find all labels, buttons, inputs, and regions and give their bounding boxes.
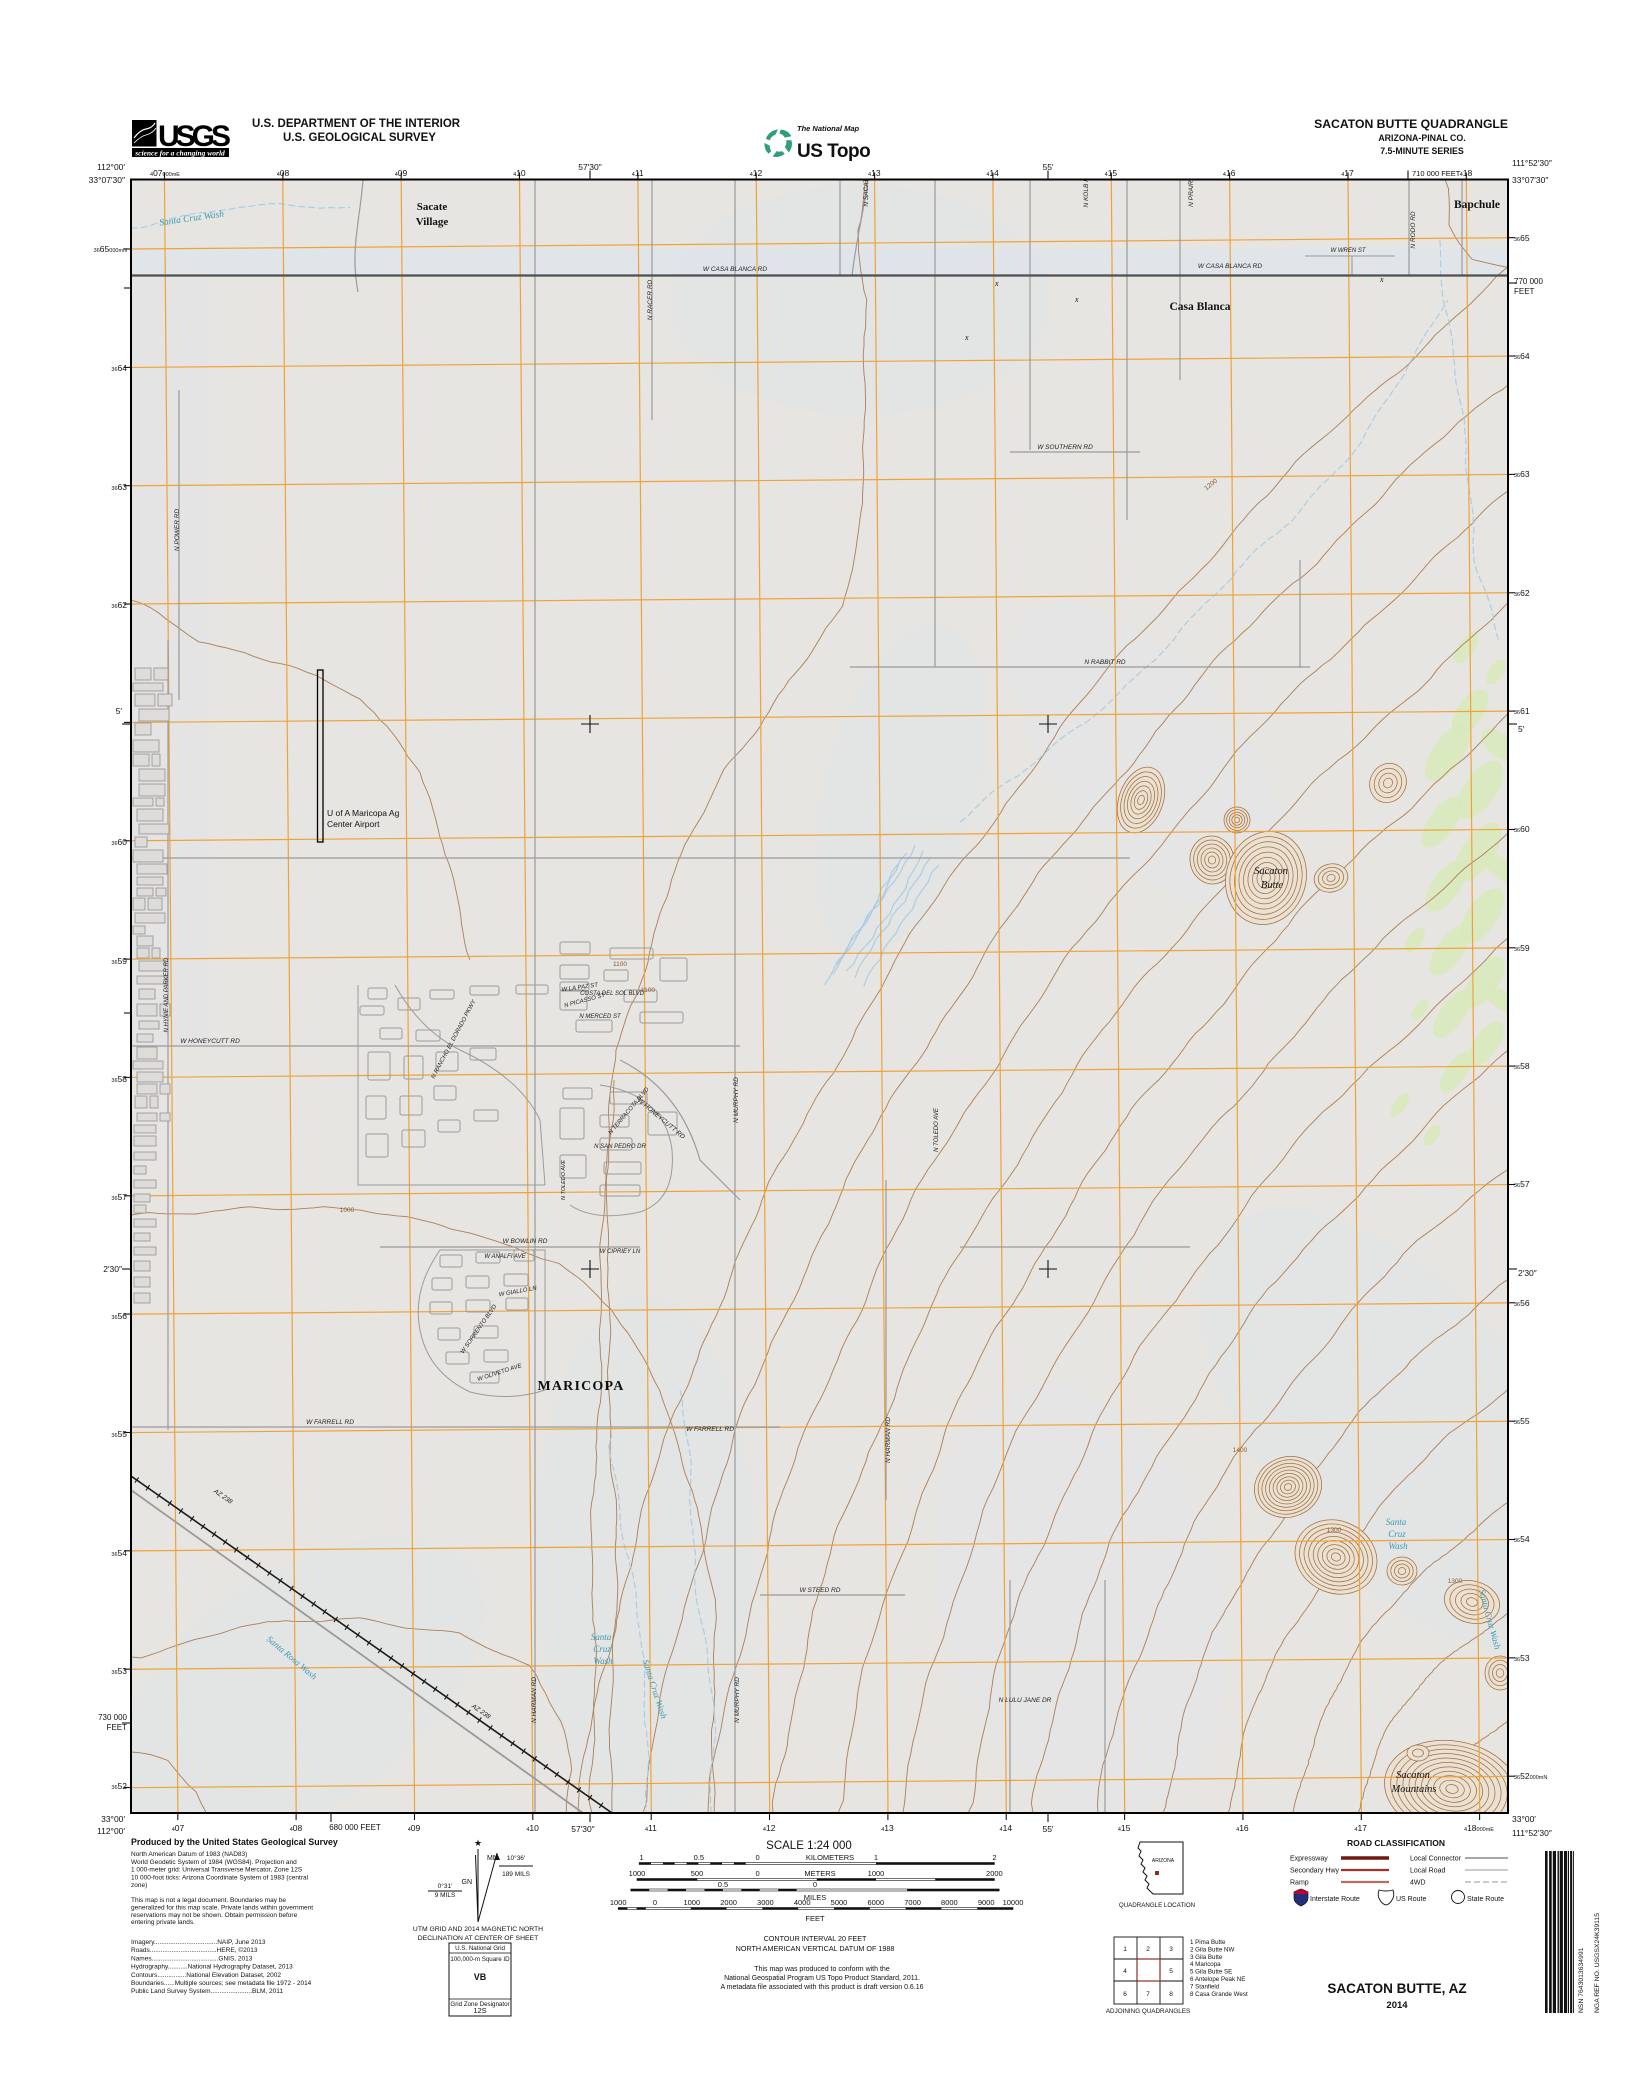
svg-text:0.5: 0.5 (718, 1880, 728, 1889)
svg-text:5 Gila Butte SE: 5 Gila Butte SE (1190, 1969, 1232, 1976)
svg-text:DECLINATION AT CENTER OF SHEET: DECLINATION AT CENTER OF SHEET (418, 1935, 538, 1942)
svg-text:KILOMETERS: KILOMETERS (806, 1853, 854, 1862)
svg-text:4 Maricopa: 4 Maricopa (1190, 1961, 1221, 1968)
svg-text:Bapchule: Bapchule (1454, 199, 1500, 211)
svg-text:W CASA BLANCA RD: W CASA BLANCA RD (1198, 263, 1262, 270)
svg-text:7000: 7000 (904, 1898, 921, 1907)
svg-text:Hydrography...........National: Hydrography...........National Hydrograp… (131, 1964, 293, 1971)
svg-text:North American Datum of 1983 (: North American Datum of 1983 (NAD83) (131, 1851, 247, 1858)
svg-text:N RABBIT RD: N RABBIT RD (1084, 659, 1125, 666)
svg-text:x: x (994, 279, 999, 288)
svg-text:This map is not a legal docume: This map is not a legal document. Bounda… (131, 1897, 286, 1904)
svg-text:33°00′: 33°00′ (1512, 1814, 1536, 1824)
svg-text:NORTH AMERICAN VERTICAL DATUM: NORTH AMERICAN VERTICAL DATUM OF 1988 (736, 1944, 895, 1953)
svg-text:Ramp: Ramp (1290, 1880, 1309, 1887)
svg-text:entering private lands.: entering private lands. (131, 1919, 195, 1926)
svg-text:N HYNIE AND PARKER RD: N HYNIE AND PARKER RD (164, 957, 170, 1032)
svg-text:NSN 7643013634991: NSN 7643013634991 (1578, 1947, 1585, 2013)
svg-text:111°52′30″: 111°52′30″ (1512, 158, 1552, 168)
svg-text:112°00′: 112°00′ (97, 162, 125, 172)
svg-text:Santa: Santa (591, 1632, 612, 1642)
svg-text:1000: 1000 (340, 1207, 355, 1214)
svg-text:33°07′30″: 33°07′30″ (1512, 175, 1548, 185)
svg-text:N HARMAN RD: N HARMAN RD (531, 1677, 538, 1723)
svg-text:Village: Village (416, 216, 449, 228)
svg-text:MARICOPA: MARICOPA (537, 1379, 624, 1394)
svg-text:2: 2 (992, 1853, 996, 1862)
svg-text:0: 0 (756, 1869, 760, 1878)
svg-text:UTM GRID AND 2014 MAGNETIC NOR: UTM GRID AND 2014 MAGNETIC NORTH (413, 1926, 543, 1933)
svg-text:Local Connector: Local Connector (1410, 1856, 1462, 1863)
svg-text:500: 500 (691, 1869, 704, 1878)
svg-text:ARIZONA-PINAL CO.: ARIZONA-PINAL CO. (1378, 133, 1465, 143)
svg-text:0: 0 (813, 1880, 817, 1889)
svg-text:7.5-MINUTE SERIES: 7.5-MINUTE SERIES (1380, 146, 1464, 156)
svg-text:National Geospatial Program US: National Geospatial Program US Topo Prod… (724, 1975, 920, 1982)
svg-text:Center Airport: Center Airport (327, 819, 380, 829)
svg-text:6: 6 (1123, 1991, 1127, 1998)
svg-text:5′: 5′ (1518, 724, 1525, 734)
svg-text:US Topo: US Topo (797, 141, 870, 162)
svg-text:730 000: 730 000 (98, 1713, 127, 1722)
svg-text:VB: VB (474, 1972, 487, 1982)
svg-text:U of A Maricopa Ag: U of A Maricopa Ag (327, 808, 400, 818)
svg-text:Secondary Hwy: Secondary Hwy (1290, 1868, 1340, 1875)
svg-text:Roads.........................: Roads...................................… (131, 1946, 258, 1954)
svg-text:science for a changing world: science for a changing world (134, 149, 225, 158)
svg-text:reservations may not be shown.: reservations may not be shown. Obtain pe… (131, 1912, 298, 1919)
svg-text:Santa: Santa (1386, 1517, 1407, 1527)
svg-text:10 000-foot ticks: Arizona Coo: 10 000-foot ticks: Arizona Coordinate Sy… (131, 1874, 309, 1881)
svg-text:The National Map: The National Map (797, 124, 860, 133)
svg-text:SACATON BUTTE, AZ: SACATON BUTTE, AZ (1327, 1981, 1466, 1996)
svg-text:1100: 1100 (613, 961, 627, 968)
svg-text:x: x (1074, 295, 1079, 304)
svg-text:Expressway: Expressway (1290, 1856, 1328, 1863)
svg-text:6000: 6000 (867, 1898, 884, 1907)
svg-text:Names.........................: Names...................................… (131, 1955, 253, 1962)
svg-text:GN: GN (462, 1879, 473, 1886)
svg-text:1 000-meter grid: Universal Tr: 1 000-meter grid: Universal Transverse M… (131, 1867, 303, 1874)
svg-text:★: ★ (474, 1838, 482, 1848)
svg-text:1000: 1000 (683, 1898, 700, 1907)
svg-text:3000: 3000 (757, 1898, 774, 1907)
svg-text:1300: 1300 (1448, 1578, 1463, 1585)
svg-text:4WD: 4WD (1410, 1880, 1426, 1887)
svg-text:0: 0 (756, 1853, 760, 1862)
svg-text:7 Stanfield: 7 Stanfield (1190, 1983, 1220, 1990)
svg-text:SACATON BUTTE QUADRANGLE: SACATON BUTTE QUADRANGLE (1314, 117, 1508, 131)
svg-text:U.S. DEPARTMENT OF THE INTERIO: U.S. DEPARTMENT OF THE INTERIOR (252, 118, 461, 130)
svg-text:MN: MN (487, 1855, 498, 1862)
svg-text:1100: 1100 (641, 987, 655, 994)
svg-text:CONTOUR INTERVAL 20 FEET: CONTOUR INTERVAL 20 FEET (764, 1934, 867, 1943)
svg-text:W CASA BLANCA RD: W CASA BLANCA RD (703, 266, 767, 273)
svg-text:8000: 8000 (941, 1898, 958, 1907)
svg-text:Interstate Route: Interstate Route (1310, 1896, 1360, 1903)
svg-text:U.S. GEOLOGICAL SURVEY: U.S. GEOLOGICAL SURVEY (283, 132, 436, 144)
svg-text:W BOWLIN RD: W BOWLIN RD (503, 1238, 548, 1245)
svg-text:W FARRELL RD: W FARRELL RD (306, 1419, 354, 1426)
svg-text:770 000: 770 000 (1514, 277, 1543, 286)
svg-text:N MERCED ST: N MERCED ST (579, 1014, 622, 1020)
svg-text:2′30″: 2′30″ (103, 1264, 122, 1274)
svg-text:3: 3 (1169, 1946, 1173, 1953)
svg-text:x: x (964, 333, 969, 342)
svg-text:1400: 1400 (1233, 1447, 1248, 1454)
svg-text:Contours................Nation: Contours................National Elevati… (131, 1972, 281, 1979)
svg-text:10000: 10000 (1003, 1898, 1024, 1907)
svg-text:8 Casa Grande West: 8 Casa Grande West (1190, 1991, 1248, 1998)
svg-text:N HARMAN RD: N HARMAN RD (885, 1417, 892, 1463)
svg-text:2000: 2000 (986, 1869, 1003, 1878)
svg-text:1000: 1000 (868, 1869, 885, 1878)
svg-text:Casa Blanca: Casa Blanca (1169, 301, 1230, 313)
svg-text:112°00′: 112°00′ (97, 1826, 125, 1836)
svg-text:Wash: Wash (593, 1656, 613, 1666)
svg-text:W FARRELL RD: W FARRELL RD (686, 1426, 734, 1433)
svg-text:33°07′30″: 33°07′30″ (89, 175, 125, 185)
svg-text:State Route: State Route (1467, 1896, 1504, 1903)
svg-text:W STEED RD: W STEED RD (800, 1587, 841, 1594)
svg-text:2 Gila Butte NW: 2 Gila Butte NW (1190, 1946, 1235, 1953)
svg-text:Produced by the United States: Produced by the United States Geological… (131, 1837, 338, 1847)
svg-text:3 Gila Butte: 3 Gila Butte (1190, 1954, 1223, 1961)
svg-text:2′30″: 2′30″ (1518, 1268, 1537, 1278)
svg-text:NGA REF NO. USGSX24K39115: NGA REF NO. USGSX24K39115 (1594, 1913, 1601, 2013)
svg-text:55′: 55′ (1042, 1824, 1053, 1834)
svg-text:Public Land Survey System..: Public Land Survey System...............… (131, 1988, 283, 1995)
svg-text:World Geodetic System of 1984: World Geodetic System of 1984 (WGS84). P… (131, 1859, 297, 1866)
svg-text:N SAN PEDRO DR: N SAN PEDRO DR (594, 1144, 646, 1150)
svg-text:5: 5 (1169, 1968, 1173, 1975)
svg-text:9 MILS: 9 MILS (435, 1892, 456, 1899)
svg-text:189 MILS: 189 MILS (502, 1871, 530, 1878)
svg-text:N TOLEDO AVE: N TOLEDO AVE (934, 1107, 940, 1152)
svg-text:N RACER RD: N RACER RD (647, 279, 654, 320)
svg-text:1 Pima Butte: 1 Pima Butte (1190, 1939, 1226, 1946)
svg-text:2000: 2000 (720, 1898, 737, 1907)
svg-text:zone): zone) (131, 1882, 147, 1889)
svg-text:100,000-m Square ID: 100,000-m Square ID (450, 1956, 510, 1963)
svg-text:This map was produced to confo: This map was produced to conform with th… (754, 1966, 890, 1973)
svg-text:6 Antelope Peak NE: 6 Antelope Peak NE (1190, 1976, 1245, 1983)
svg-text:57′30″: 57′30″ (571, 1824, 595, 1834)
svg-text:QUADRANGLE LOCATION: QUADRANGLE LOCATION (1119, 1902, 1195, 1909)
svg-text:x: x (1379, 275, 1384, 284)
svg-text:1000: 1000 (610, 1898, 627, 1907)
svg-text:2: 2 (1146, 1946, 1150, 1953)
svg-text:1: 1 (874, 1853, 878, 1862)
svg-text:Sacaton: Sacaton (1254, 866, 1288, 877)
svg-text:N RODO RD: N RODO RD (1410, 211, 1417, 249)
svg-text:5000: 5000 (831, 1898, 848, 1907)
svg-text:W HONEYCUTT RD: W HONEYCUTT RD (180, 1038, 240, 1045)
svg-text:Cruz: Cruz (593, 1644, 611, 1654)
svg-text:710 000 FEET: 710 000 FEET (1412, 169, 1461, 178)
svg-text:33°00′: 33°00′ (101, 1814, 125, 1824)
svg-text:generalized for this map scale: generalized for this map scale. Private … (131, 1904, 313, 1911)
svg-text:ADJOINING QUADRANGLES: ADJOINING QUADRANGLES (1106, 2008, 1190, 2015)
svg-text:1: 1 (640, 1853, 644, 1862)
svg-text:Sacaton: Sacaton (1396, 1770, 1430, 1781)
svg-text:FEET: FEET (1514, 287, 1535, 296)
svg-text:Imagery.......................: Imagery.................................… (131, 1939, 266, 1946)
svg-text:Butte: Butte (1261, 880, 1283, 891)
svg-text:0.5: 0.5 (694, 1853, 704, 1862)
svg-text:W WREN ST: W WREN ST (1331, 248, 1367, 254)
svg-text:W CIPRIEY LN: W CIPRIEY LN (600, 1249, 641, 1255)
svg-text:9000: 9000 (978, 1898, 995, 1907)
svg-text:Sacate: Sacate (417, 201, 448, 213)
svg-text:N MURPHY RD: N MURPHY RD (733, 1077, 740, 1123)
svg-text:0: 0 (653, 1898, 657, 1907)
svg-text:2014: 2014 (1386, 2000, 1408, 2011)
svg-text:FEET: FEET (805, 1914, 825, 1923)
svg-text:12S: 12S (473, 2006, 486, 2015)
svg-text:1300: 1300 (1327, 1527, 1342, 1534)
svg-text:N MURPHY RD: N MURPHY RD (734, 1677, 741, 1723)
svg-text:Local Road: Local Road (1410, 1868, 1446, 1875)
svg-text:0°31′: 0°31′ (438, 1882, 453, 1890)
svg-text:680 000 FEET: 680 000 FEET (329, 1823, 381, 1832)
svg-text:U.S. National Grid: U.S. National Grid (455, 1945, 505, 1952)
svg-text:N POWER RD: N POWER RD (174, 509, 181, 552)
svg-text:W ANALFI AVE: W ANALFI AVE (484, 1254, 526, 1260)
svg-text:5′: 5′ (116, 706, 123, 716)
svg-text:55′: 55′ (1042, 162, 1053, 172)
svg-text:ARIZONA: ARIZONA (1152, 1858, 1175, 1864)
svg-text:Mountains: Mountains (1391, 1784, 1437, 1795)
svg-text:N LULU JANE DR: N LULU JANE DR (999, 1697, 1052, 1704)
svg-text:METERS: METERS (804, 1869, 835, 1878)
svg-text:ROAD CLASSIFICATION: ROAD CLASSIFICATION (1347, 1838, 1445, 1848)
svg-text:8: 8 (1169, 1991, 1173, 1998)
svg-text:1: 1 (1123, 1946, 1127, 1953)
svg-text:N TOLEDO AVE: N TOLEDO AVE (561, 1160, 567, 1200)
svg-text:111°52′30″: 111°52′30″ (1512, 1828, 1552, 1838)
svg-text:Cruz: Cruz (1388, 1529, 1406, 1539)
svg-text:4000: 4000 (794, 1898, 811, 1907)
svg-text:4: 4 (1123, 1968, 1127, 1975)
svg-text:7: 7 (1146, 1991, 1150, 1998)
svg-text:Wash: Wash (1388, 1541, 1408, 1551)
svg-text:FEET: FEET (107, 1723, 128, 1732)
svg-text:1000: 1000 (629, 1869, 646, 1878)
svg-text:US Route: US Route (1396, 1896, 1426, 1903)
svg-text:SCALE 1:24 000: SCALE 1:24 000 (766, 1840, 852, 1852)
svg-text:Boundaries......Multiple sourc: Boundaries......Multiple sources; see me… (131, 1980, 312, 1987)
svg-text:A metadata file associated wit: A metadata file associated with this pro… (720, 1984, 923, 1991)
svg-text:W SOUTHERN RD: W SOUTHERN RD (1037, 444, 1093, 451)
svg-text:10°36′: 10°36′ (507, 1854, 526, 1862)
svg-text:57′30″: 57′30″ (578, 162, 602, 172)
